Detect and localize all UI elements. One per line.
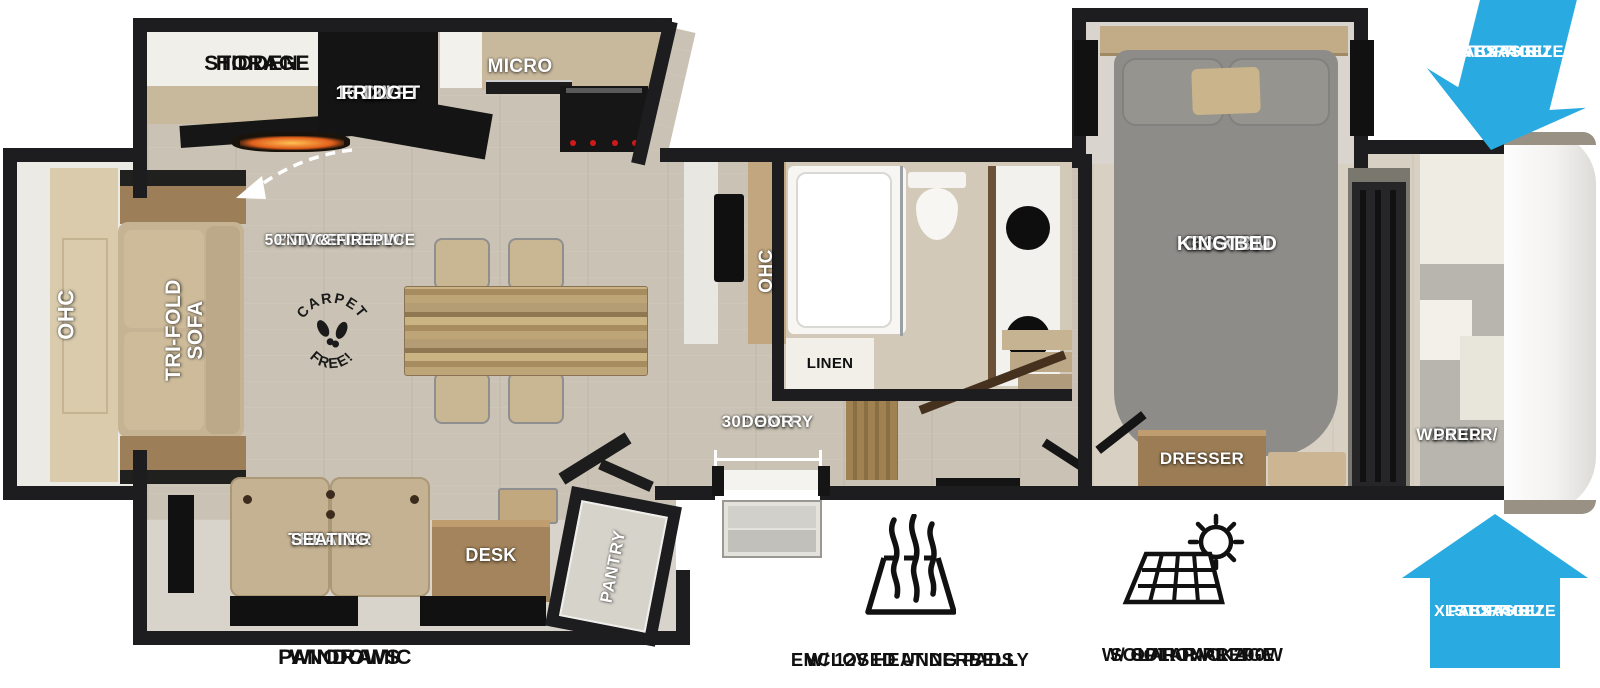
washer-prep-label: WASHER/DYERPREP bbox=[1398, 400, 1516, 470]
toilet-tank bbox=[908, 172, 966, 188]
wall-segment bbox=[3, 148, 140, 162]
dresser-label: DRESSER bbox=[1138, 442, 1266, 476]
bedroom-step bbox=[1018, 374, 1072, 390]
floorplan-canvas: PANTRY HIDDENSTORAGE 16 CU FT12VFRIDGE M… bbox=[0, 0, 1600, 688]
wall-segment bbox=[1078, 154, 1092, 500]
bed-bench bbox=[1268, 452, 1346, 486]
front-cap bbox=[1504, 132, 1596, 514]
dining-chair bbox=[508, 372, 564, 424]
kitchen-sink bbox=[714, 194, 744, 282]
desk-label: DESK bbox=[435, 540, 547, 570]
side-table bbox=[498, 488, 558, 524]
dining-chair bbox=[508, 238, 564, 290]
bathroom-sink bbox=[1006, 206, 1050, 250]
door-bracket-line bbox=[714, 458, 822, 461]
panoramic-windows-label: PANORAMICWINDOWS bbox=[245, 630, 445, 684]
wall-segment bbox=[133, 18, 672, 32]
entry-threshold bbox=[818, 466, 830, 496]
dining-chair bbox=[434, 238, 490, 290]
wall-segment bbox=[820, 486, 1540, 500]
shower-tub bbox=[796, 172, 892, 328]
bedroom-window-right bbox=[1350, 40, 1374, 136]
wall-segment bbox=[655, 486, 715, 500]
ent-center-label: SWING-OPENENT. CENTER W/50” TV & FIREPLC… bbox=[245, 212, 435, 270]
shower-glass bbox=[900, 166, 903, 336]
door-bracket-tick bbox=[714, 450, 717, 466]
stove-handle bbox=[566, 88, 642, 93]
fridge-label: 16 CU FT12VFRIDGE bbox=[322, 52, 434, 136]
pantry-interior: PANTRY bbox=[559, 500, 668, 633]
wardrobe-slat bbox=[1360, 190, 1366, 482]
theater-slide-window-left bbox=[168, 495, 194, 593]
solar-panel-icon bbox=[1118, 510, 1248, 620]
wardrobe-slat bbox=[1375, 190, 1381, 482]
front-cabinet bbox=[1420, 154, 1512, 264]
wall-segment bbox=[3, 486, 140, 500]
underbelly-label: ENCLOSED UNDERBELLYW/ 12V HEATING PADS bbox=[790, 636, 1030, 684]
svg-text:CARPET: CARPET bbox=[294, 292, 370, 322]
dining-chair bbox=[434, 372, 490, 424]
bedroom-step bbox=[1002, 330, 1072, 350]
solar-label: SOLAR PREPW/ OPTIONAL 200WSOLAR PACKAGE bbox=[1080, 624, 1305, 686]
dining-table bbox=[404, 286, 648, 376]
entry-step bbox=[728, 530, 816, 552]
boot-print-icon bbox=[330, 320, 350, 349]
pass-thru-bottom-label: XL TEXAS SIZEPASS THRUSTORAGE bbox=[1415, 576, 1575, 648]
hall-cabinet bbox=[846, 400, 898, 480]
wall-segment bbox=[1072, 8, 1368, 22]
svg-text:FREE!: FREE! bbox=[307, 349, 358, 372]
linen-label: LINEN bbox=[786, 342, 874, 386]
tri-fold-sofa-label: TRI-FOLD SOFA bbox=[140, 245, 230, 415]
heating-pads-icon bbox=[852, 514, 956, 618]
stove-knob bbox=[612, 140, 618, 146]
swing-arrow-icon bbox=[234, 142, 359, 214]
wall-segment bbox=[133, 148, 147, 198]
stove-knob bbox=[570, 140, 576, 146]
micro-label: MICRO bbox=[462, 54, 578, 80]
stove-knob bbox=[590, 140, 596, 146]
pantry-label: PANTRY bbox=[597, 528, 631, 604]
entry-step bbox=[728, 506, 816, 528]
panoramic-window bbox=[420, 596, 546, 626]
wall-segment bbox=[133, 486, 147, 645]
pass-thru-top-label: XL TEXAS SIZEPASS THRUSTORAGE bbox=[1420, 12, 1582, 92]
kitchen-counter-island bbox=[684, 162, 718, 344]
wall-segment bbox=[3, 148, 17, 500]
cup-holder bbox=[410, 495, 419, 504]
theater-seating-label: THEATERSEATING bbox=[245, 518, 415, 562]
wall-segment bbox=[133, 18, 147, 158]
carpet-free-stamp-icon: CARPET FREE! bbox=[292, 292, 372, 372]
entry-door-label: 30” ENTRYDOOR bbox=[690, 400, 845, 444]
bedroom-window-left bbox=[1074, 40, 1098, 136]
rear-ohc-label: OHC bbox=[38, 268, 94, 362]
cup-holder bbox=[326, 490, 335, 499]
wardrobe-slat bbox=[1390, 190, 1396, 482]
wall-segment bbox=[676, 570, 690, 645]
wall-segment bbox=[660, 148, 1080, 162]
king-bed-label: 66 X 80CUSTOMKING BED bbox=[1112, 202, 1342, 286]
door-bracket-tick bbox=[819, 450, 822, 466]
entry-threshold bbox=[712, 466, 724, 496]
panoramic-window bbox=[230, 596, 358, 626]
bed-accent-pillow bbox=[1191, 67, 1261, 115]
entry-door bbox=[724, 470, 818, 490]
cup-holder bbox=[243, 495, 252, 504]
kitchen-ohc-label: OHC bbox=[742, 228, 792, 314]
